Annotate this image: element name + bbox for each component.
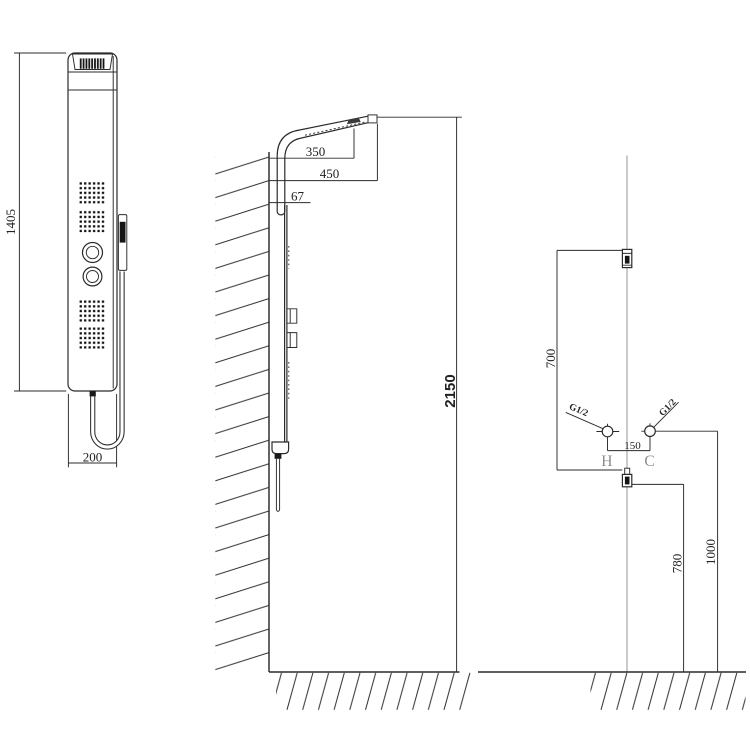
installation-dimension-lines [557, 250, 718, 672]
shower-panel-drawing: 1405 200 [0, 0, 750, 750]
overhead-shower-grille [79, 58, 104, 69]
cold-label: C [644, 453, 654, 470]
technical-drawing-page: 1405 200 [0, 0, 750, 750]
dimension-150-label: 150 [624, 440, 641, 452]
installation-floor-hatching [591, 673, 746, 711]
floor-hatching [276, 673, 471, 711]
dimension-2150-label: 2150 [442, 374, 459, 407]
side-view: 350 450 67 2150 [215, 115, 471, 710]
cold-water-inlet [645, 426, 656, 437]
fitting-core [625, 477, 630, 485]
diverter-knob-bottom [83, 267, 102, 286]
body-jet-grid-2 [79, 210, 106, 232]
dimension-450-label: 450 [320, 166, 340, 181]
fitting-core [625, 256, 630, 264]
dimension-1405-lines [14, 53, 66, 391]
front-view: 1405 200 [3, 53, 127, 467]
dimension-700-label: 700 [543, 349, 558, 369]
dimension-1405-label: 1405 [3, 209, 18, 235]
bottom-pipe-fitting [622, 468, 631, 487]
body-jet-grid-1 [79, 182, 106, 204]
panel-bottom-cap [272, 442, 289, 454]
dimension-350-label: 350 [306, 144, 326, 159]
fitting-stem [625, 468, 630, 474]
dimension-1405: 1405 [3, 53, 66, 391]
cold-thread-label: G1/2 [658, 397, 679, 418]
knob-outer-ring [83, 267, 102, 286]
side-hose-connector [275, 454, 282, 459]
hose-connector [90, 391, 96, 396]
side-knobs [287, 309, 297, 348]
diverter-knob-top [83, 243, 103, 263]
hand-shower [118, 215, 126, 271]
top-pipe-fitting [622, 249, 631, 267]
wall-hatching [215, 153, 269, 672]
hand-shower-grip [120, 222, 126, 243]
body-jet-grid-4 [79, 327, 106, 349]
installation-view: 700 150 H C G1/2 G1/2 780 1000 [478, 156, 746, 711]
knob-outer-ring [83, 243, 103, 263]
side-dimension-lines: 350 450 67 2150 [269, 117, 462, 672]
dimension-1000-label: 1000 [703, 539, 718, 565]
wall-and-floor-line [269, 152, 460, 672]
spray-face-dotted-line [305, 122, 366, 135]
dimension-780-label: 780 [669, 554, 684, 574]
hot-water-inlet [602, 426, 613, 437]
body-jet-grid-3 [79, 300, 106, 322]
hot-label: H [601, 453, 612, 470]
shower-arm-and-panel-profile [277, 116, 368, 442]
hot-thread-label: G1/2 [567, 402, 589, 419]
dimension-67-label: 67 [291, 188, 305, 203]
side-hanging-hose [276, 459, 279, 512]
dimension-200-label: 200 [83, 449, 103, 464]
shower-head-tip [368, 115, 377, 123]
